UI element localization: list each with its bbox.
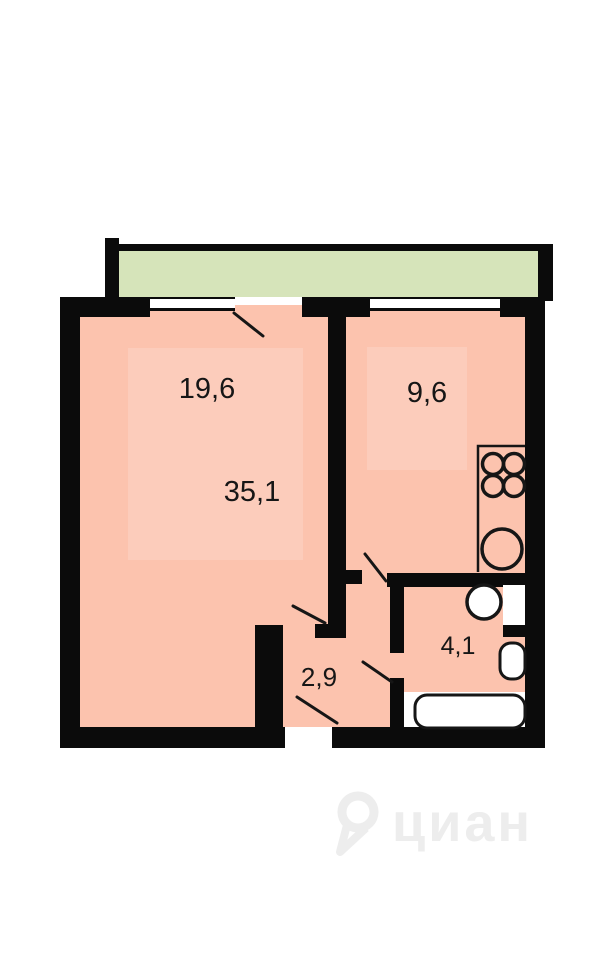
outer-wall-left <box>60 297 80 748</box>
kitchen-window-sill <box>370 311 500 317</box>
wall-living-kitchen-foot <box>315 624 346 638</box>
hallway-area-label: 2,9 <box>269 661 369 693</box>
outer-wall-bottom-right-segment <box>332 727 545 748</box>
balcony-left-wall <box>105 238 119 300</box>
bathroom-niche <box>503 585 525 625</box>
wall-bathroom-upper <box>390 587 404 653</box>
watermark-text: циан <box>392 792 533 854</box>
wall-living-kitchen <box>328 317 346 638</box>
bathroom-area-label: 4,1 <box>413 631 503 661</box>
outer-wall-top-right-segment <box>500 297 545 317</box>
cian-pin-watermark-icon <box>340 796 374 852</box>
outer-wall-top-mid-segment <box>302 297 370 317</box>
balcony-right-wall <box>538 244 553 301</box>
kitchen-area-label: 9,6 <box>367 376 487 410</box>
wall-kitchen-door-stub <box>346 570 362 584</box>
bathroom-niche-stub <box>503 625 525 637</box>
floor-plan: 19,6 35,1 9,6 2,9 4,1 циан <box>0 0 612 960</box>
total-area-label: 35,1 <box>192 475 312 509</box>
wall-bathroom-lower <box>390 678 404 727</box>
balcony-floor <box>119 251 538 299</box>
outer-wall-right <box>525 297 545 748</box>
outer-wall-top-left-segment <box>60 297 150 317</box>
balcony-door-opening <box>235 305 302 317</box>
balcony-top-wall <box>105 244 553 251</box>
kitchen-window-icon <box>370 297 500 311</box>
outer-wall-bottom-left-segment <box>60 727 285 748</box>
bathtub-niche <box>404 692 525 727</box>
living-room-area-label: 19,6 <box>147 372 267 406</box>
balcony-door-threshold <box>235 297 302 305</box>
